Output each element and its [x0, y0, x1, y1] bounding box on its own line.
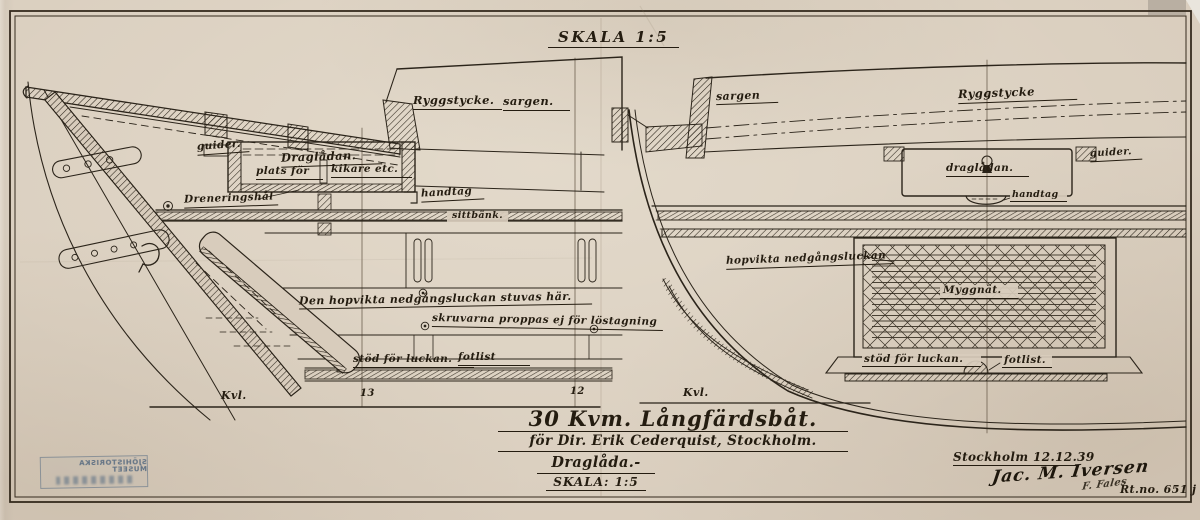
diagonal-brace — [45, 92, 301, 396]
label-station-13: 13 — [360, 389, 375, 399]
backrest-panel — [704, 63, 1186, 152]
label-sargen-right: sargen — [716, 89, 779, 105]
seat-bench — [156, 210, 622, 221]
label-fotlist-right: fotlist. — [1002, 355, 1052, 368]
left-view-linework — [23, 57, 628, 420]
label-handtag-right: handtag — [1010, 190, 1067, 202]
label-stod-left: stöd för luckan. — [353, 354, 474, 368]
label-sargen-left: sargen. — [503, 96, 570, 111]
title-line2: för Dir. Erik Cederquist, Stockholm. — [498, 435, 848, 452]
label-plats-for: plats för — [256, 166, 323, 180]
drawing-sheet: SKALA 1:5 Ryggstycke. sargen. guider. Dr… — [0, 0, 1200, 520]
label-kikare: kikare etc. — [331, 164, 412, 178]
title-line3: Draglåda.- — [537, 456, 655, 474]
right-view-linework — [628, 60, 1186, 433]
label-kvl-left: Kvl. — [221, 390, 247, 401]
scale-title: SKALA 1:5 — [548, 30, 679, 48]
drawing-number: Rt.no. 651 j — [1120, 484, 1196, 495]
label-stod-right: stöd för luckan. — [862, 354, 981, 367]
label-ryggstycke-left: Ryggstycke. — [413, 95, 502, 110]
title-line1: 30 Kvm. Långfärdsbåt. — [498, 408, 848, 432]
label-fotlist-left: fotlist — [458, 352, 530, 366]
museum-stamp: SJÖHISTORISKA MUSEET — [40, 455, 149, 489]
label-kvl-right: Kvl. — [683, 387, 709, 398]
coaming-panel — [386, 57, 622, 192]
label-guider-right: guider. — [1090, 147, 1143, 163]
museum-stamp-text: SJÖHISTORISKA MUSEET — [41, 459, 147, 475]
deck-bands — [652, 206, 1186, 237]
label-station-12: 12 — [570, 387, 585, 397]
label-myggnat: Myggnät. — [940, 285, 1018, 299]
sheet-corner-tape — [1148, 0, 1200, 24]
label-dragladan-right: draglådan. — [946, 163, 1029, 177]
museum-stamp-number-smudge — [56, 475, 132, 484]
label-sittbank: sittbänk. — [447, 211, 508, 222]
title-line4: SKALA: 1:5 — [546, 476, 646, 491]
